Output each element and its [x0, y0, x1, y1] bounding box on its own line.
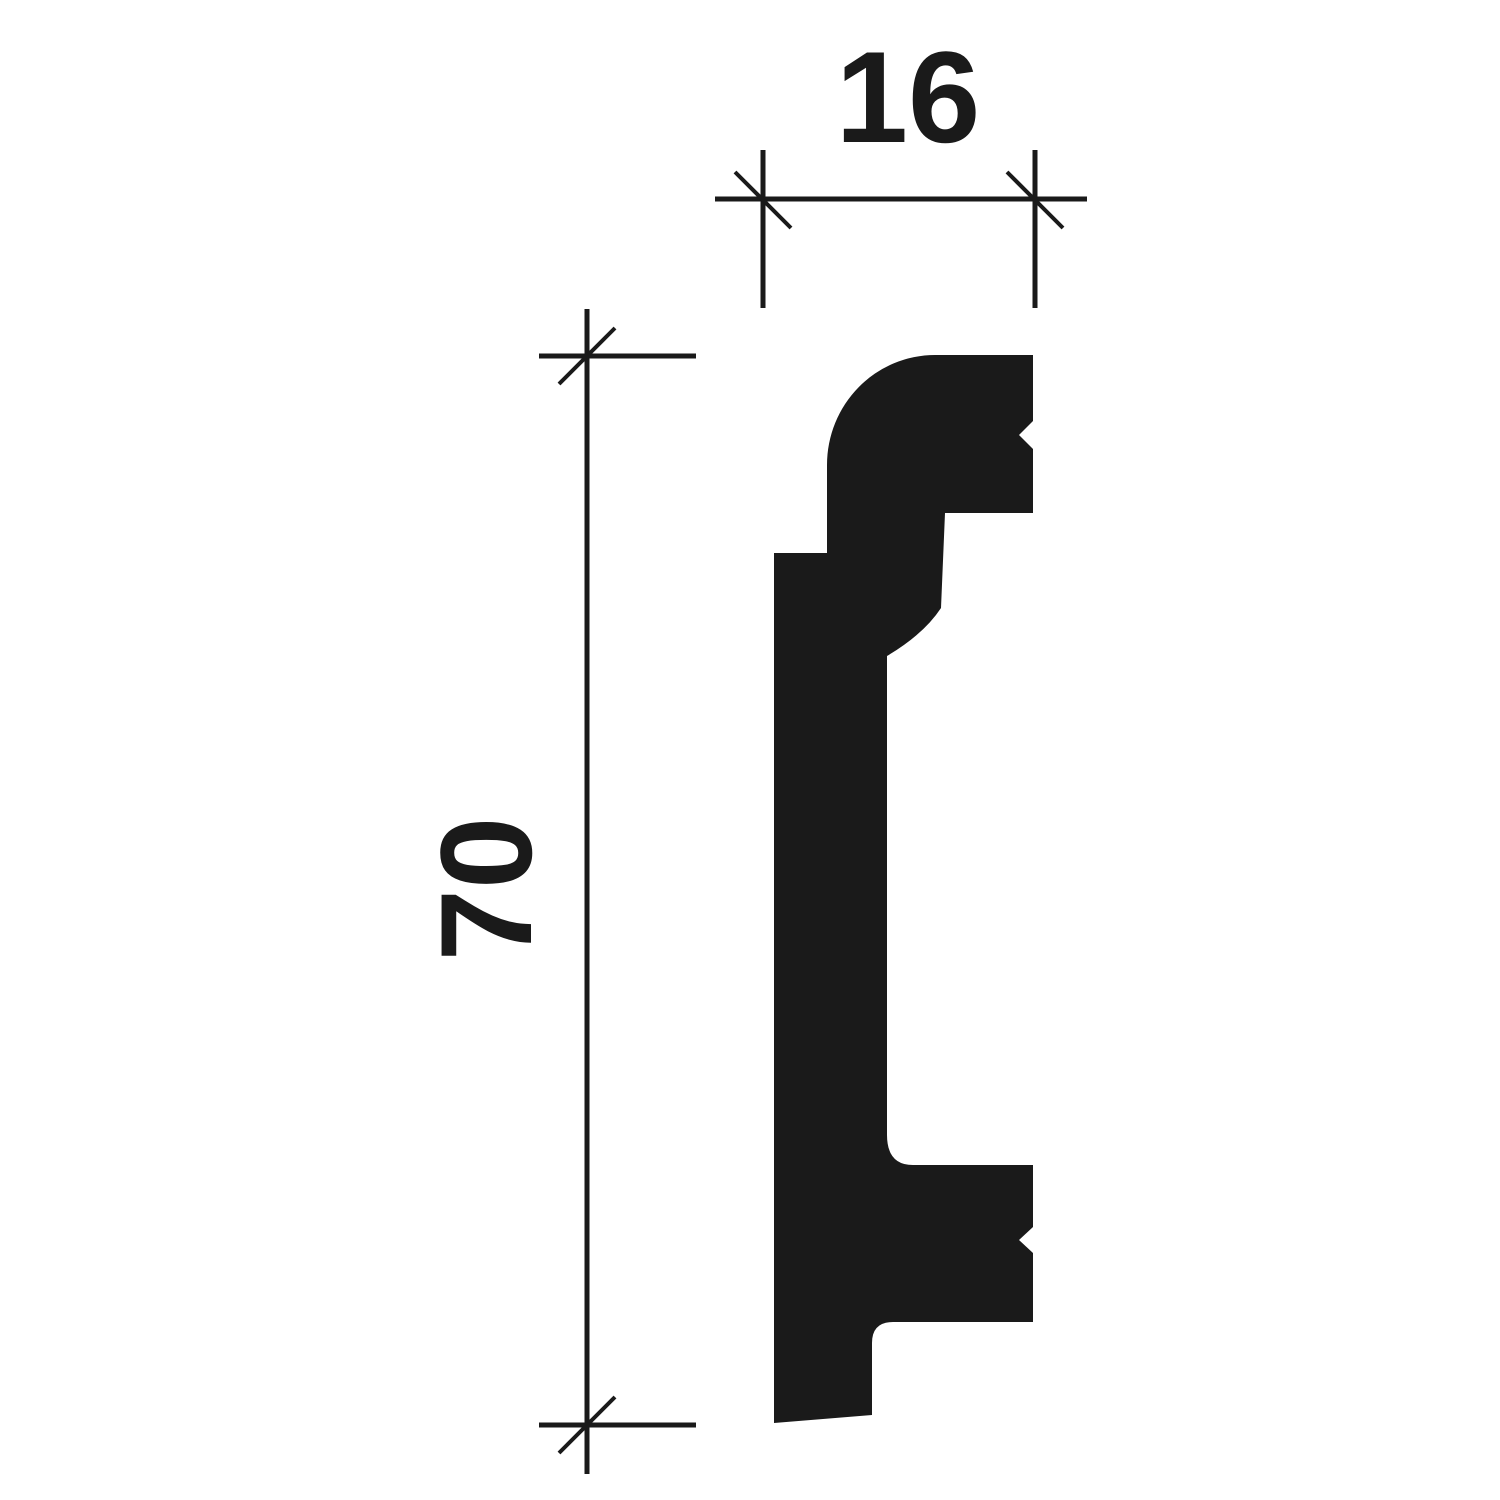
width-dimension-label: 16: [836, 24, 981, 170]
profile-shape: [774, 355, 1033, 1423]
height-dimension: 70: [413, 309, 696, 1474]
technical-drawing: 16 70: [0, 0, 1500, 1500]
width-dimension: 16: [715, 24, 1087, 308]
drawing-canvas: 16 70: [0, 0, 1500, 1500]
height-dimension-label: 70: [413, 817, 559, 962]
